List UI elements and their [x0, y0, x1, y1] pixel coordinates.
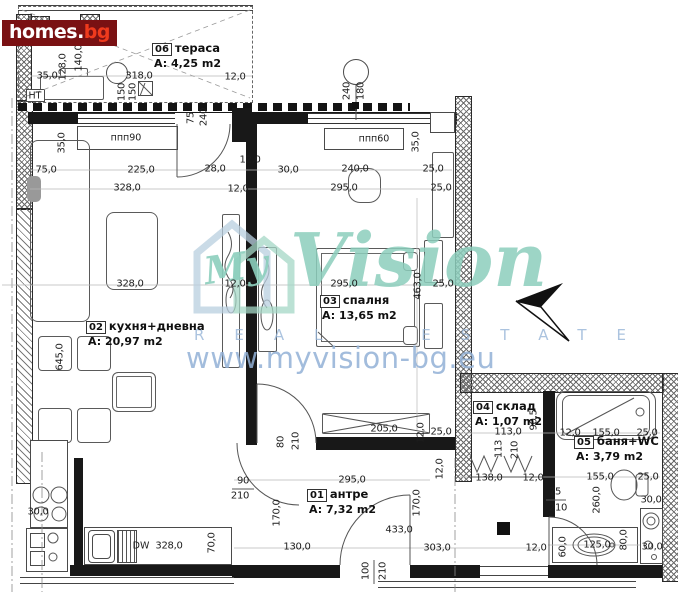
tub-diagonal	[566, 398, 634, 434]
bedroom-door	[257, 384, 316, 443]
bath-door	[549, 517, 597, 565]
logo-dot: .	[77, 21, 84, 43]
jamb-block	[497, 522, 510, 535]
logo-name: homes	[9, 21, 77, 43]
leader-dot	[352, 102, 359, 109]
coat-hooks	[470, 456, 532, 472]
floor-plan-canvas: My Vision REAL ESTATE www.myvision-bg.eu…	[0, 0, 678, 600]
kitchen-hall-door	[237, 443, 299, 505]
homes-bg-logo: homes.bg	[2, 20, 117, 46]
watermark-script-prefix: My	[202, 244, 271, 291]
tub-drain	[636, 408, 644, 416]
watermark-script: Vision	[290, 224, 547, 298]
cooktop	[33, 487, 67, 561]
logo-tld: bg	[84, 21, 110, 43]
toilet	[611, 470, 648, 500]
entry-door	[340, 495, 410, 565]
watermark-url: www.myvision-bg.eu	[186, 341, 495, 375]
washing-machine-drum	[643, 513, 659, 560]
terrace-door	[177, 124, 230, 177]
